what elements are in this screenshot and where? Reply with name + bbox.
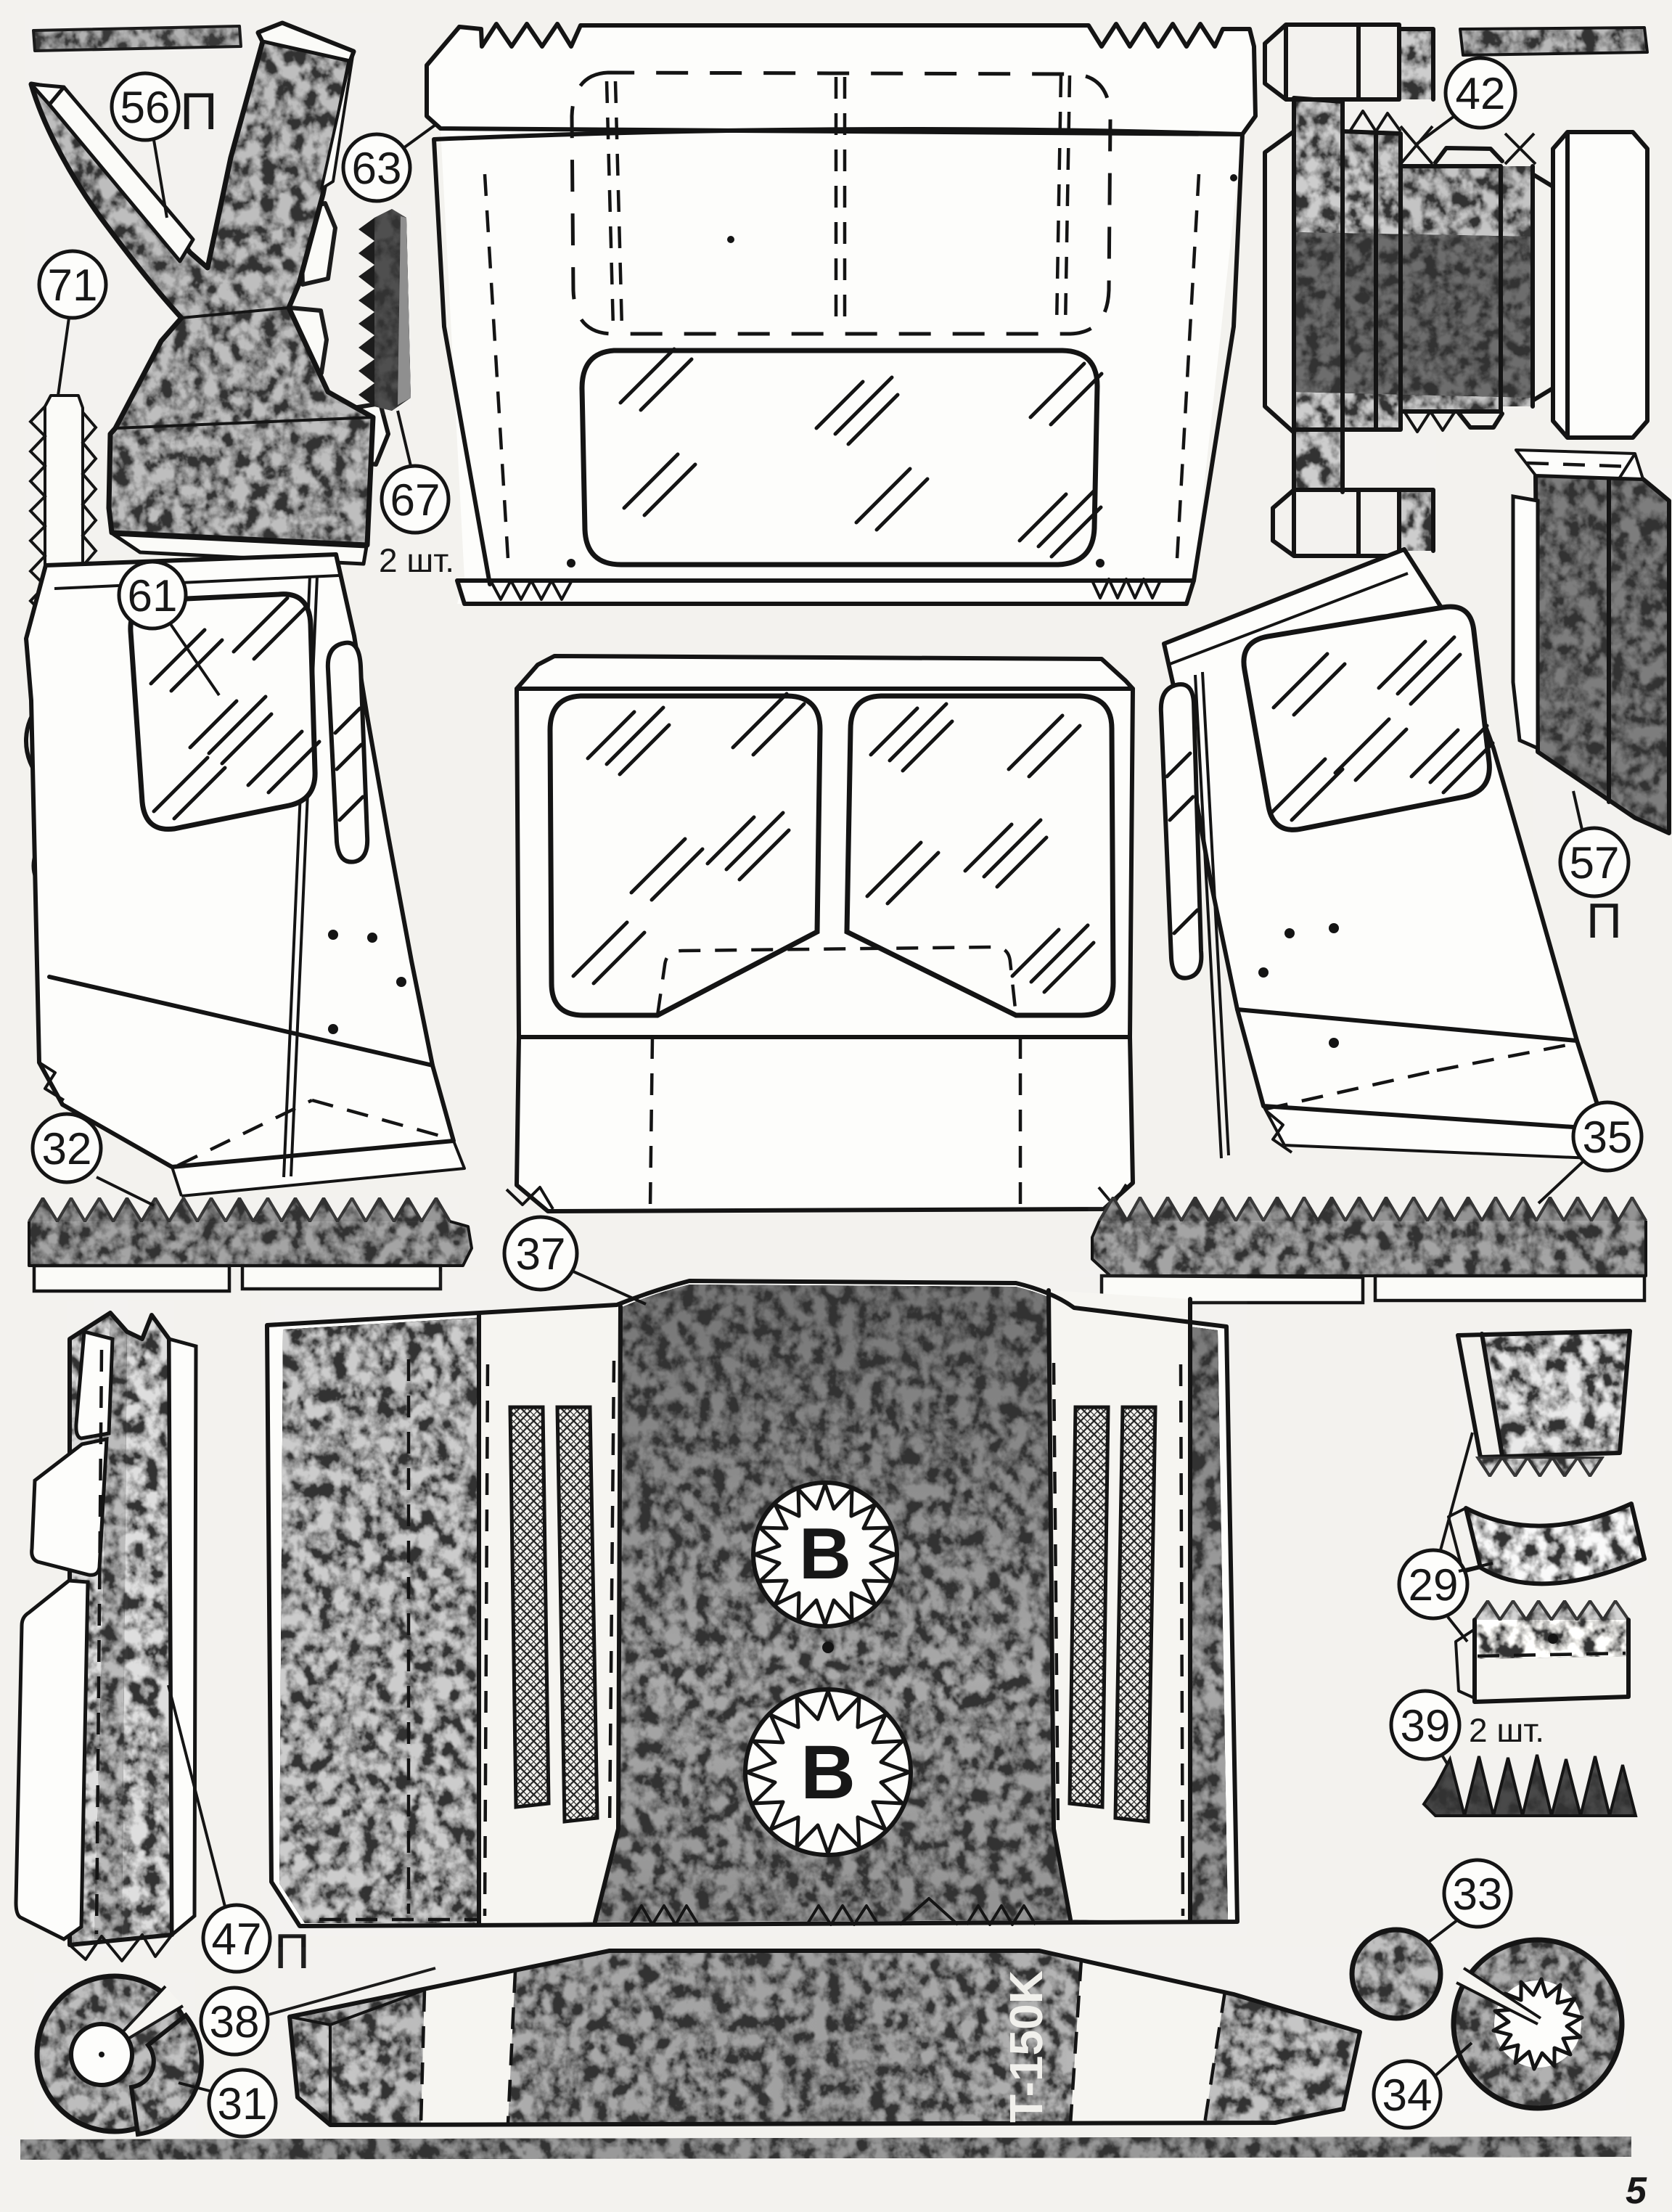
svg-text:П: П <box>274 1924 310 1979</box>
svg-text:39: 39 <box>1401 1701 1451 1751</box>
svg-text:2 шт.: 2 шт. <box>379 541 454 579</box>
svg-text:37: 37 <box>516 1229 566 1279</box>
svg-text:В: В <box>800 1730 856 1815</box>
svg-text:29: 29 <box>1409 1560 1459 1610</box>
svg-text:63: 63 <box>352 144 402 194</box>
svg-text:32: 32 <box>42 1124 92 1174</box>
svg-text:34: 34 <box>1382 2070 1433 2121</box>
svg-text:61: 61 <box>128 571 178 621</box>
svg-text:В: В <box>799 1513 851 1594</box>
svg-text:67: 67 <box>390 475 440 525</box>
svg-text:T-150K: T-150K <box>1000 1970 1052 2123</box>
svg-text:47: 47 <box>212 1914 262 1965</box>
svg-text:71: 71 <box>48 261 98 311</box>
svg-text:П: П <box>180 83 218 141</box>
svg-text:33: 33 <box>1453 1869 1503 1920</box>
svg-text:38: 38 <box>210 1997 260 2047</box>
svg-text:31: 31 <box>218 2079 268 2129</box>
svg-text:56: 56 <box>120 83 171 133</box>
svg-text:5: 5 <box>1626 2170 1647 2212</box>
svg-text:П: П <box>1586 893 1622 949</box>
svg-text:2 шт.: 2 шт. <box>1469 1711 1544 1749</box>
svg-text:42: 42 <box>1456 69 1506 119</box>
svg-text:35: 35 <box>1583 1113 1633 1163</box>
svg-text:57: 57 <box>1570 838 1620 888</box>
